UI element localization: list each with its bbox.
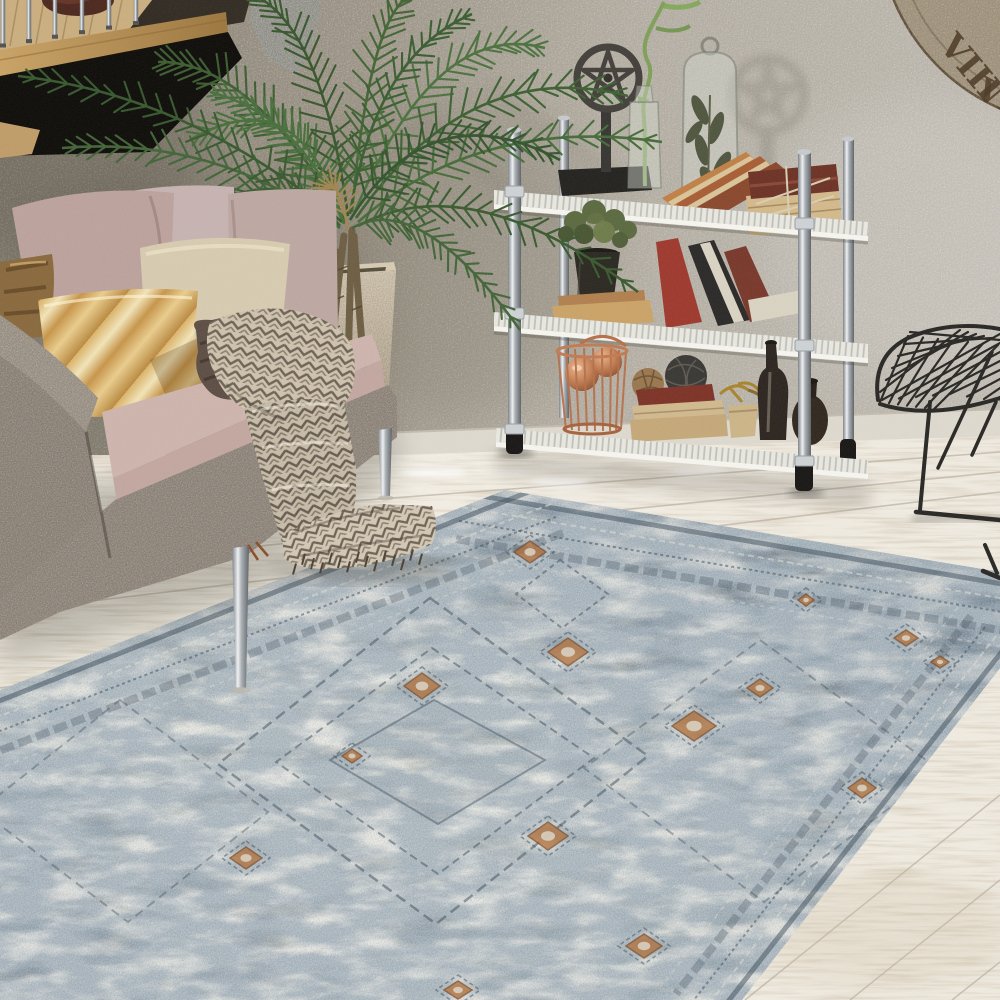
photo-grain: [0, 0, 1000, 1000]
scene-canvas: VIII VII: [0, 0, 1000, 1000]
living-room-photo: VIII VII: [0, 0, 1000, 1000]
